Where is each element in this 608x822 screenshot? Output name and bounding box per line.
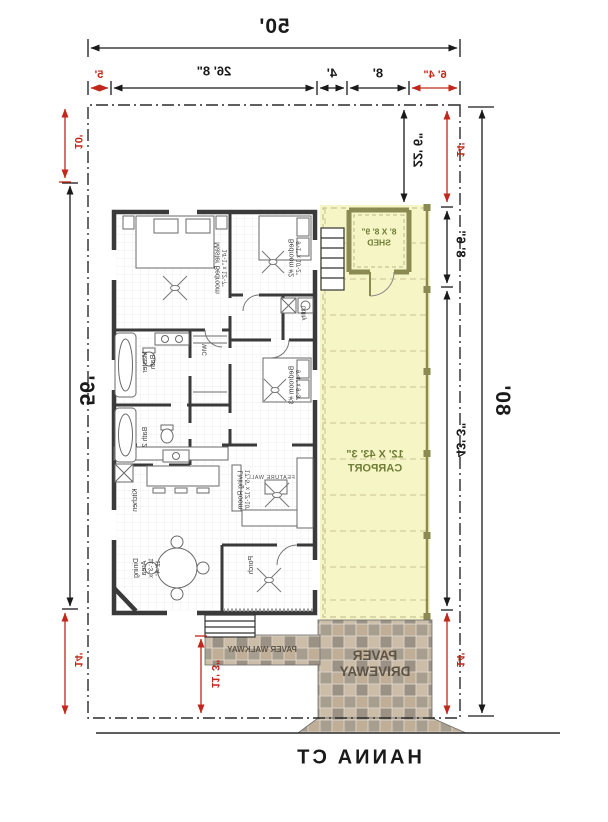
shed-size: 8' X 8' 9" bbox=[361, 226, 396, 237]
dim-gap: 4' bbox=[327, 66, 337, 81]
dim-carport-length: 43' 3" bbox=[454, 423, 469, 458]
dim-house-depth: 56' bbox=[74, 374, 98, 405]
site-plan-sheet: 50' 6' 4" 8' 4' 26' 8" 5' 80' 14' 22' 6"… bbox=[0, 0, 608, 822]
dim-left-setback-bottom: 14' bbox=[454, 653, 466, 668]
room-name: WIC bbox=[203, 344, 210, 356]
walkway-label: PAVER WALKWAY bbox=[227, 645, 297, 655]
room-size: 9'-1" x 10'-2" bbox=[297, 239, 304, 277]
room-name: Bath 2 bbox=[142, 427, 150, 447]
dim-lot-depth: 80' bbox=[490, 384, 514, 415]
shed-label: 8' X 8' 9" SHED bbox=[361, 226, 396, 247]
dim-house-side-setback: 5' bbox=[95, 69, 104, 81]
room-name: Master Bedroom bbox=[215, 242, 223, 294]
carport-name: CARPORT bbox=[346, 462, 404, 476]
dim-house-width: 26' 8" bbox=[197, 64, 232, 79]
room-label-utility: Utility bbox=[302, 306, 309, 321]
room-label-master-bedroom: Master Bedroom 14'-1" x 12'-7" bbox=[215, 242, 230, 294]
room-label-kitchen: Kitchen bbox=[132, 488, 140, 511]
room-label-bedroom2: Bedroom #2 9'-1" x 10'-2" bbox=[289, 239, 304, 277]
room-name: Utility bbox=[302, 306, 309, 321]
dim-shed-width: 8' bbox=[373, 66, 383, 81]
back-steps bbox=[321, 228, 344, 290]
dim-shed-depth: 8' 6" bbox=[454, 230, 469, 257]
dim-shed-offset: 22' 6" bbox=[411, 133, 426, 168]
room-size: 14'-1" x 12'-7" bbox=[223, 242, 230, 294]
room-name: Dining Area bbox=[133, 550, 149, 586]
dim-walkway-length: 11' 3" bbox=[209, 660, 221, 689]
room-name: Bedroom #2 bbox=[289, 239, 297, 277]
room-name: Living Room bbox=[238, 467, 246, 513]
room-label-bedroom3: Bedroom #3 9'-4" x 9'-3" bbox=[289, 366, 304, 404]
site-plan-drawing bbox=[0, 0, 608, 822]
street-name: HANNA CT bbox=[294, 747, 422, 770]
room-label-living: Living Room 17'-5" x 12'-10" bbox=[238, 467, 253, 513]
room-name: Kitchen bbox=[132, 488, 140, 511]
site-plan-mirrored: 50' 6' 4" 8' 4' 26' 8" 5' 80' 14' 22' 6"… bbox=[0, 0, 608, 822]
carport-label: 12' X 43' 3" CARPORT bbox=[346, 448, 404, 476]
dim-lot-width: 50' bbox=[258, 15, 289, 39]
carport-size: 12' X 43' 3" bbox=[346, 448, 404, 462]
room-label-wic: WIC bbox=[203, 344, 210, 356]
room-label-porch: Porch bbox=[248, 556, 256, 574]
porch-steps bbox=[205, 615, 255, 637]
room-size: 11'-3" x 12'-4" bbox=[149, 550, 163, 586]
dim-shed-side-setback: 6' 4" bbox=[423, 69, 446, 81]
room-size: 9'-4" x 9'-3" bbox=[297, 366, 304, 404]
room-name: Bedroom #3 bbox=[289, 366, 297, 404]
room-label-bath2: Bath 2 bbox=[142, 427, 150, 447]
room-name: Porch bbox=[248, 556, 256, 574]
driveway-label-line2: DRIVEWAY bbox=[340, 664, 411, 680]
room-size: 17'-5" x 12'-10" bbox=[246, 467, 253, 513]
room-name: Master Bath bbox=[142, 346, 158, 378]
driveway-label: PAVER DRIVEWAY bbox=[340, 648, 411, 680]
room-label-master-bath: Master Bath bbox=[142, 346, 158, 378]
shed-name: SHED bbox=[361, 237, 396, 248]
feature-wall-label: FEATURE WALL bbox=[247, 475, 295, 481]
room-label-dining: Dining Area 11'-3" x 12'-4" bbox=[133, 550, 163, 586]
dim-left-setback-top: 14' bbox=[454, 143, 466, 158]
dim-right-setback-bottom: 14' bbox=[72, 653, 84, 668]
dim-right-setback-top: 10' bbox=[72, 135, 84, 150]
driveway-label-line1: PAVER bbox=[340, 648, 411, 664]
